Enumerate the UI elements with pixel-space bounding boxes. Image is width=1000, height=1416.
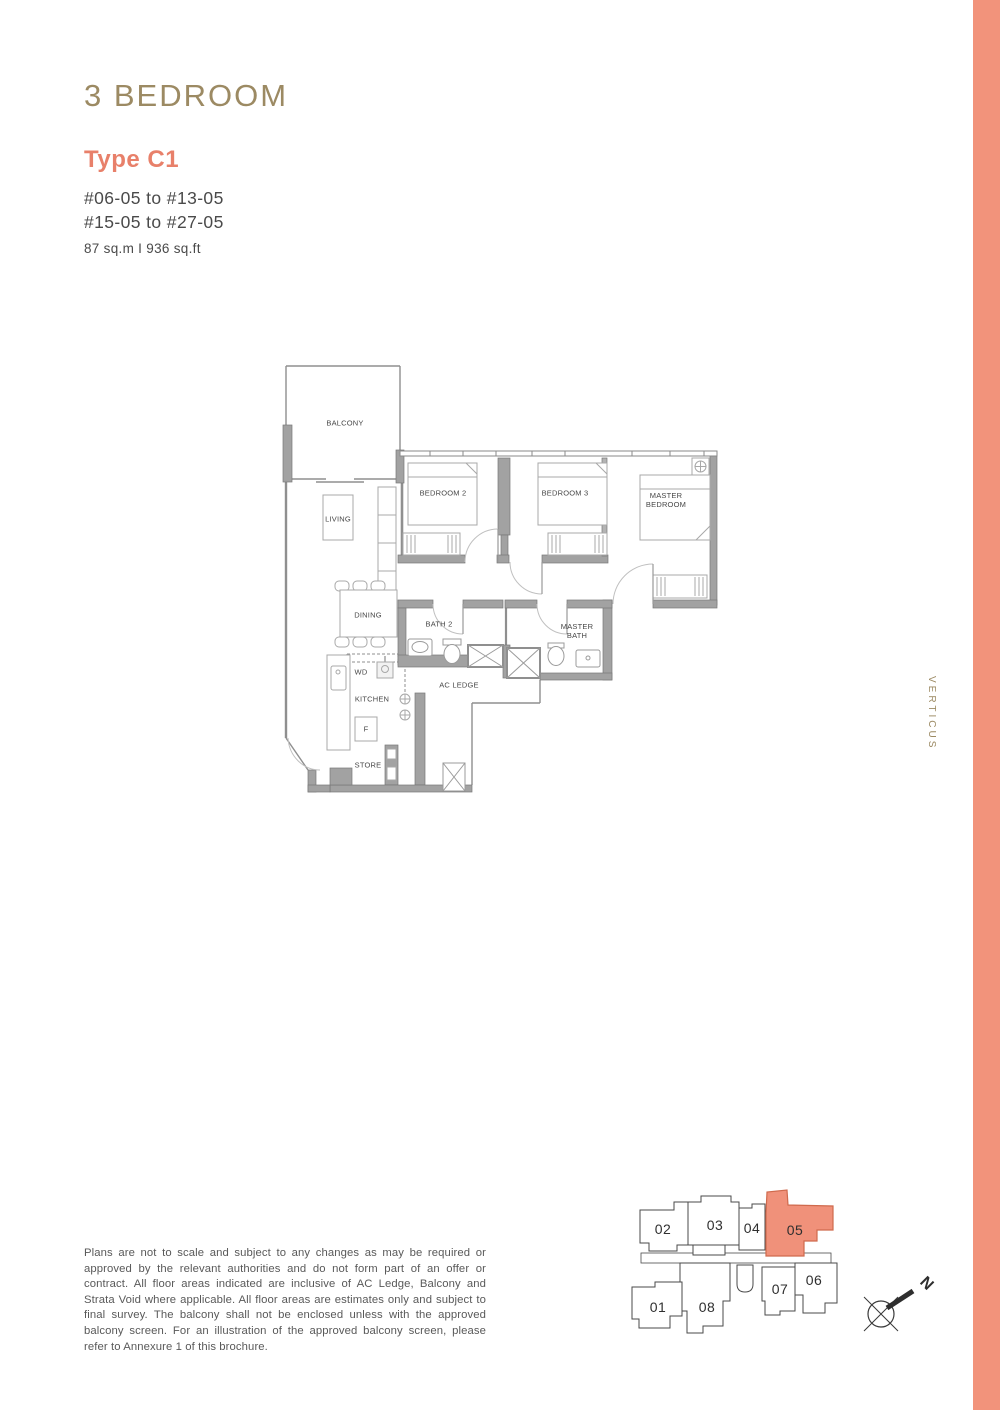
- room-label-store: STORE: [355, 761, 382, 770]
- room-label-dining: DINING: [354, 611, 381, 620]
- unit-type-label: Type C1: [84, 146, 179, 174]
- site-unit-label-03: 03: [707, 1217, 724, 1233]
- site-plan-key: 01 02 03 04 05 06 07 08 N: [625, 1183, 955, 1358]
- plan-thin-walls: [286, 366, 540, 785]
- room-label-bedroom2: BEDROOM 2: [420, 489, 467, 498]
- unit-area: 87 sq.m I 936 sq.ft: [84, 241, 201, 256]
- room-label-ac-ledge: AC LEDGE: [439, 681, 479, 690]
- site-unit-label-07: 07: [772, 1281, 789, 1297]
- unit-range-line2: #15-05 to #27-05: [84, 212, 224, 233]
- room-label-wd: WD: [355, 668, 368, 677]
- room-label-master-bath: MASTER BATH: [554, 622, 600, 640]
- site-unit-label-04: 04: [744, 1220, 761, 1236]
- brand-vertical-text: VERTICUS: [926, 676, 937, 750]
- plan-window-wall: [400, 451, 717, 456]
- site-plan-drawing: [625, 1183, 955, 1358]
- site-unit-label-06: 06: [806, 1272, 823, 1288]
- disclaimer-text: Plans are not to scale and subject to an…: [84, 1246, 486, 1355]
- page-accent-strip: [973, 0, 1000, 1410]
- room-label-bedroom3: BEDROOM 3: [542, 489, 589, 498]
- room-label-master-bedroom: MASTER BEDROOM: [636, 491, 696, 509]
- site-unit-label-05: 05: [787, 1222, 804, 1238]
- room-label-living: LIVING: [325, 515, 351, 524]
- room-label-fridge: F: [364, 725, 369, 734]
- room-label-balcony: BALCONY: [326, 419, 363, 428]
- site-unit-label-01: 01: [650, 1299, 667, 1315]
- page-title: 3 BEDROOM: [84, 78, 288, 114]
- room-label-kitchen: KITCHEN: [355, 695, 389, 704]
- room-label-bath2: BATH 2: [426, 620, 453, 629]
- site-unit-label-02: 02: [655, 1221, 672, 1237]
- floor-plan: BALCONY LIVING BEDROOM 2 BEDROOM 3 MASTE…: [280, 358, 725, 798]
- site-unit-label-08: 08: [699, 1299, 716, 1315]
- north-compass-icon: [864, 1291, 913, 1331]
- unit-range-line1: #06-05 to #13-05: [84, 188, 224, 209]
